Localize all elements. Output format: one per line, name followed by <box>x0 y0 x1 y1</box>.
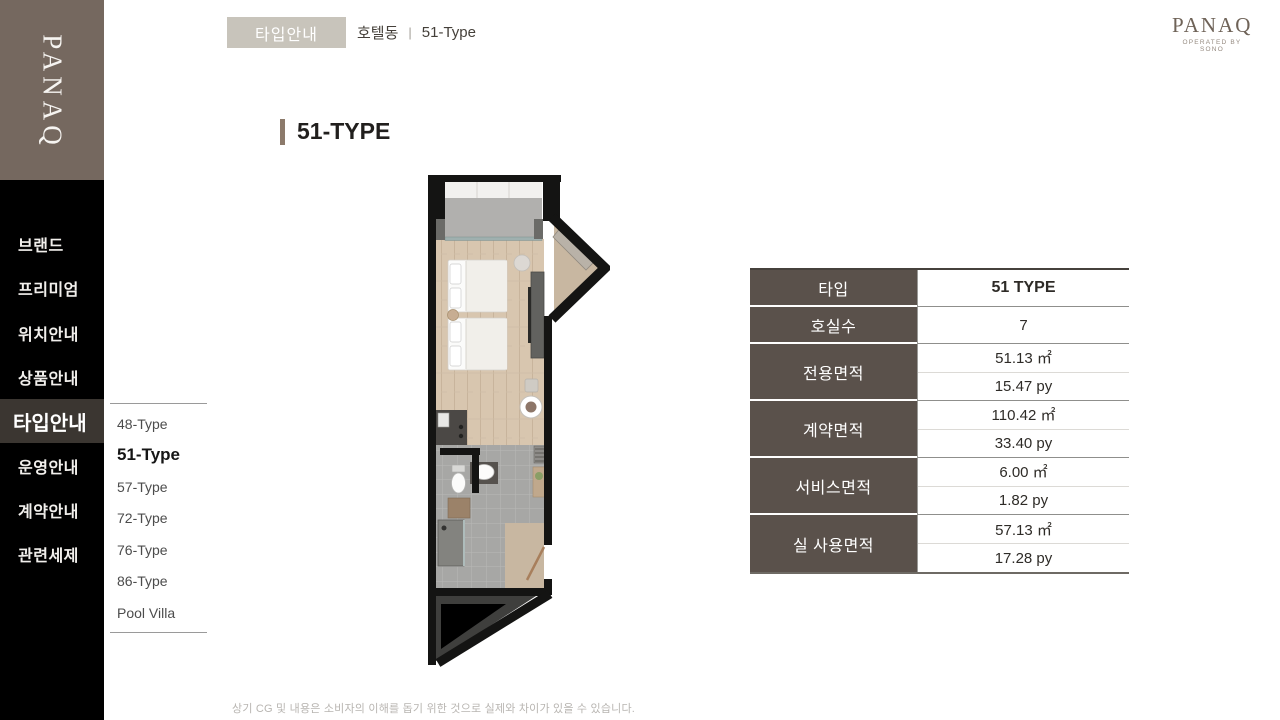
balcony-wall-right <box>534 219 543 239</box>
spec-value: 51.13 ㎡ <box>918 344 1129 372</box>
kitchenette <box>436 410 467 445</box>
header-logo: PANAQ OPERATED BY SONO <box>1172 13 1252 53</box>
spec-label: 타입 <box>750 270 917 307</box>
table-row: 타입51 TYPE <box>750 270 1129 307</box>
spec-label: 실 사용면적 <box>750 515 917 572</box>
title-accent-bar <box>280 119 285 145</box>
floor-plan-svg <box>428 175 610 667</box>
submenu-item[interactable]: 76-Type <box>110 534 207 566</box>
spec-label: 전용면적 <box>750 344 917 401</box>
spec-values: 110.42 ㎡33.40 py <box>917 401 1129 458</box>
breadcrumb-current: 51-Type <box>422 24 476 41</box>
disclaimer-text: 상기 CG 및 내용은 소비자의 이해를 돕기 위한 것으로 실제와 차이가 있… <box>232 700 635 716</box>
sidebar-item[interactable]: 운영안내 <box>0 443 104 487</box>
sidebar-logo: PANAQ <box>37 34 68 150</box>
spec-label: 계약면적 <box>750 401 917 458</box>
submenu-item[interactable]: 86-Type <box>110 566 207 598</box>
table-top <box>526 402 537 413</box>
spec-values: 6.00 ㎡1.82 py <box>917 458 1129 515</box>
header-logo-tagline: OPERATED BY SONO <box>1172 39 1252 53</box>
spec-value: 33.40 py <box>918 429 1129 458</box>
bed-1 <box>448 260 507 312</box>
spec-values: 51.13 ㎡15.47 py <box>917 344 1129 401</box>
spec-value: 51 TYPE <box>918 270 1129 306</box>
title-text: 51-TYPE <box>297 118 390 145</box>
spec-values: 51 TYPE <box>917 270 1129 307</box>
submenu-item[interactable]: 72-Type <box>110 503 207 535</box>
breadcrumb-section: 호텔동 <box>357 22 398 43</box>
chair <box>525 379 538 392</box>
balcony-wall-left <box>436 219 445 240</box>
breadcrumb: 호텔동 | 51-Type <box>357 17 476 48</box>
type-submenu: 48-Type51-Type57-Type72-Type76-Type86-Ty… <box>110 403 207 633</box>
submenu-item[interactable]: 51-Type <box>110 440 207 472</box>
floor-plan-image <box>428 175 610 667</box>
spec-value: 15.47 py <box>918 372 1129 401</box>
submenu-item[interactable]: 57-Type <box>110 471 207 503</box>
page: PANAQ 브랜드프리미엄위치안내상품안내타입안내운영안내계약안내관련세제 48… <box>0 0 1280 720</box>
table-row: 전용면적51.13 ㎡15.47 py <box>750 344 1129 401</box>
bath-counter <box>448 498 470 518</box>
sidebar: PANAQ 브랜드프리미엄위치안내상품안내타입안내운영안내계약안내관련세제 <box>0 0 104 720</box>
nightstand <box>448 310 459 321</box>
table-row: 서비스면적6.00 ㎡1.82 py <box>750 458 1129 515</box>
stool <box>514 255 530 271</box>
table-row: 계약면적110.42 ㎡33.40 py <box>750 401 1129 458</box>
bed-2 <box>448 318 507 370</box>
sidebar-item[interactable]: 위치안내 <box>0 311 104 355</box>
section-title: 51-TYPE <box>280 118 390 145</box>
submenu-item[interactable]: Pool Villa <box>110 597 207 629</box>
spec-values: 7 <box>917 307 1129 344</box>
submenu-item[interactable]: 48-Type <box>110 408 207 440</box>
spec-value: 1.82 py <box>918 486 1129 515</box>
sidebar-item[interactable]: 브랜드 <box>0 222 104 266</box>
table-row: 실 사용면적57.13 ㎡17.28 py <box>750 515 1129 572</box>
sidebar-item[interactable]: 관련세제 <box>0 532 104 576</box>
spec-table: 타입51 TYPE호실수7전용면적51.13 ㎡15.47 py계약면적110.… <box>750 268 1129 574</box>
spec-value: 17.28 py <box>918 543 1129 572</box>
shower <box>438 520 465 566</box>
entry-shelf <box>533 467 545 497</box>
spec-value: 7 <box>918 307 1129 343</box>
tv-console <box>531 272 544 358</box>
sidebar-item[interactable]: 계약안내 <box>0 488 104 532</box>
sidebar-item[interactable]: 프리미엄 <box>0 266 104 310</box>
page-badge: 타입안내 <box>227 17 346 48</box>
table-row: 호실수7 <box>750 307 1129 344</box>
toilet <box>452 465 466 493</box>
spec-label: 서비스면적 <box>750 458 917 515</box>
spec-label: 호실수 <box>750 307 917 344</box>
ac-louver <box>534 446 545 463</box>
breadcrumb-separator: | <box>408 25 411 40</box>
spec-value: 110.42 ㎡ <box>918 401 1129 429</box>
tv <box>528 287 531 343</box>
sidebar-logo-block: PANAQ <box>0 0 104 180</box>
sidebar-item[interactable]: 타입안내 <box>0 399 104 443</box>
sidebar-menu: 브랜드프리미엄위치안내상품안내타입안내운영안내계약안내관련세제 <box>0 222 104 576</box>
header-logo-text: PANAQ <box>1172 13 1252 38</box>
spec-values: 57.13 ㎡17.28 py <box>917 515 1129 572</box>
sidebar-item[interactable]: 상품안내 <box>0 355 104 399</box>
spec-value: 57.13 ㎡ <box>918 515 1129 543</box>
spec-value: 6.00 ㎡ <box>918 458 1129 486</box>
